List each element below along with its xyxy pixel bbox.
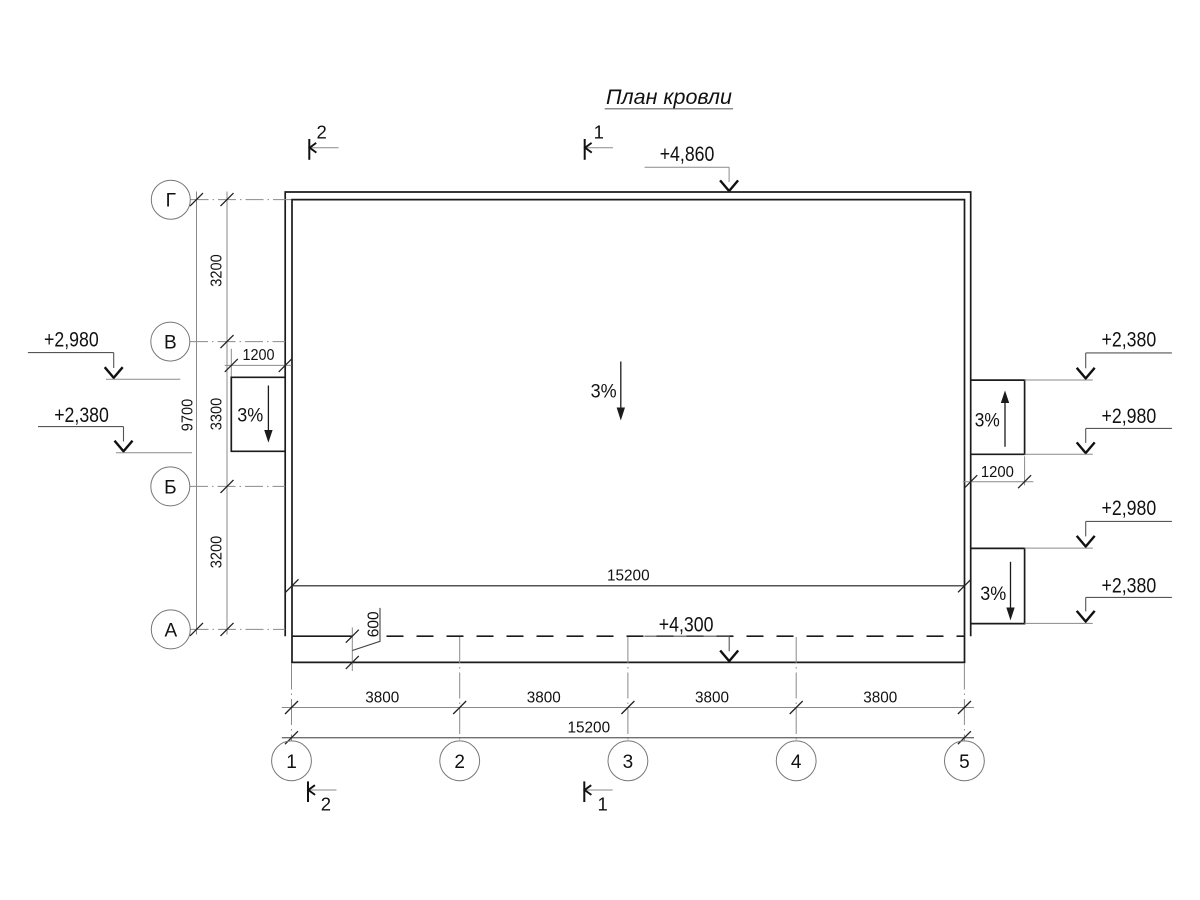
svg-text:3%: 3% (591, 381, 617, 402)
svg-text:1: 1 (594, 122, 604, 143)
svg-text:+2,380: +2,380 (1102, 575, 1157, 598)
svg-text:3%: 3% (980, 584, 1006, 605)
svg-text:3800: 3800 (365, 690, 399, 707)
svg-text:3800: 3800 (527, 690, 561, 707)
svg-text:+2,380: +2,380 (1102, 329, 1157, 352)
svg-text:+4,300: +4,300 (659, 613, 714, 636)
svg-text:15200: 15200 (568, 720, 611, 737)
svg-text:600: 600 (365, 611, 382, 637)
svg-text:План кровли: План кровли (606, 86, 732, 109)
svg-text:3: 3 (623, 752, 634, 773)
svg-text:3800: 3800 (863, 690, 897, 707)
svg-text:В: В (164, 333, 177, 354)
svg-text:3%: 3% (237, 406, 263, 427)
svg-text:+2,980: +2,980 (1102, 497, 1157, 520)
svg-text:1200: 1200 (981, 464, 1014, 481)
svg-text:9700: 9700 (180, 398, 197, 431)
svg-text:3800: 3800 (695, 690, 729, 707)
svg-text:3200: 3200 (209, 535, 226, 568)
svg-text:+2,980: +2,980 (44, 329, 99, 352)
svg-text:+2,980: +2,980 (1102, 405, 1157, 428)
svg-text:2: 2 (321, 793, 331, 814)
svg-text:2: 2 (454, 752, 465, 773)
svg-text:1: 1 (597, 793, 607, 814)
svg-text:Г: Г (166, 191, 176, 212)
svg-text:Б: Б (164, 477, 176, 498)
svg-text:+2,380: +2,380 (54, 404, 109, 427)
svg-text:+4,860: +4,860 (660, 143, 715, 166)
svg-text:1200: 1200 (243, 347, 275, 364)
svg-text:3%: 3% (975, 410, 1000, 431)
svg-text:3300: 3300 (209, 397, 226, 430)
svg-text:3200: 3200 (209, 254, 226, 287)
svg-text:4: 4 (791, 752, 802, 773)
svg-text:А: А (164, 620, 177, 641)
svg-text:1: 1 (286, 752, 297, 773)
svg-text:15200: 15200 (607, 568, 650, 585)
svg-text:2: 2 (317, 122, 327, 143)
svg-text:5: 5 (959, 752, 970, 773)
